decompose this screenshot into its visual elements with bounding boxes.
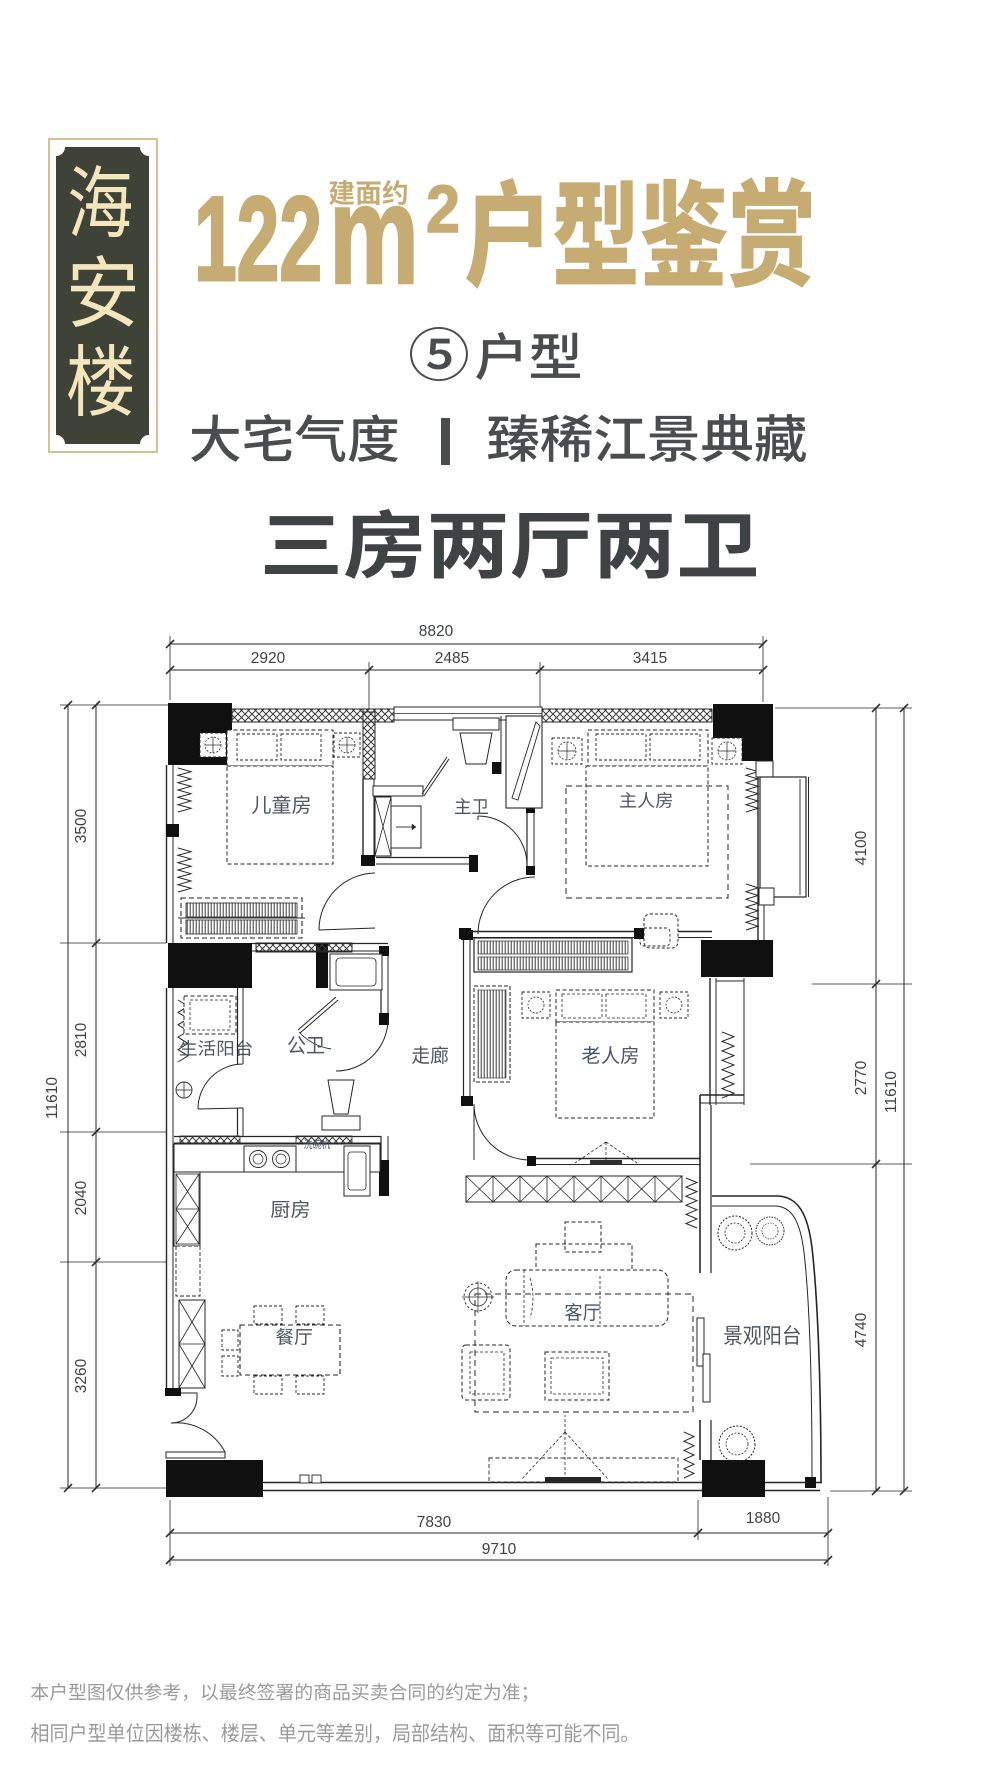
svg-text:4100: 4100: [853, 830, 870, 865]
svg-text:8820: 8820: [419, 623, 454, 640]
svg-text:11610: 11610: [883, 1071, 900, 1113]
svg-text:2770: 2770: [853, 1060, 870, 1095]
svg-text:122: 122: [194, 172, 322, 306]
svg-text:2485: 2485: [435, 650, 469, 667]
svg-text:3500: 3500: [73, 808, 90, 843]
svg-text:11610: 11610: [44, 1077, 61, 1119]
svg-text:2: 2: [426, 172, 460, 247]
svg-text:m: m: [329, 155, 419, 313]
svg-text:3260: 3260: [73, 1358, 90, 1393]
svg-text:2040: 2040: [73, 1180, 90, 1215]
svg-text:7830: 7830: [417, 1514, 452, 1531]
svg-text:9710: 9710: [482, 1541, 517, 1558]
svg-text:1880: 1880: [746, 1510, 781, 1527]
svg-text:2810: 2810: [73, 1022, 90, 1057]
svg-text:4740: 4740: [853, 1312, 870, 1347]
svg-text:3415: 3415: [633, 650, 667, 667]
svg-text:2920: 2920: [251, 650, 286, 667]
